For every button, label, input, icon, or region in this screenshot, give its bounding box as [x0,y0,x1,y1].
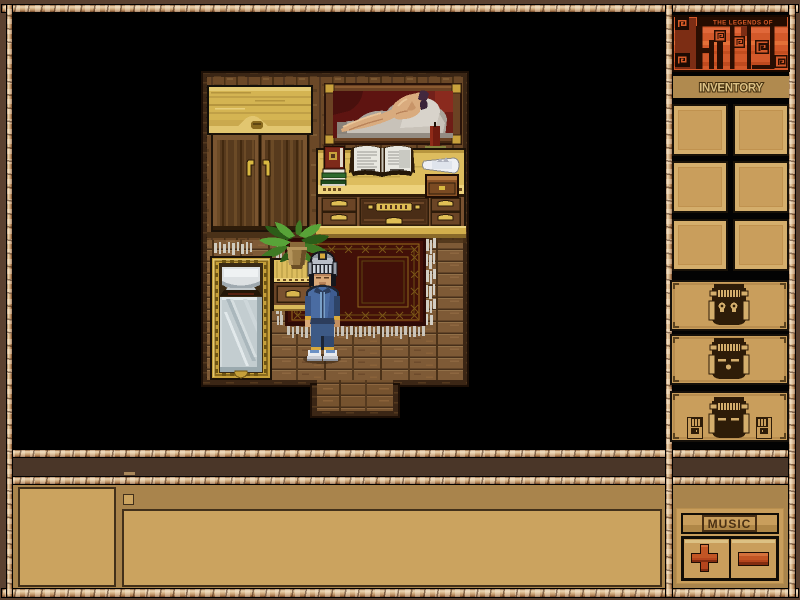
svg-text:THE LEGENDS OF: THE LEGENDS OF [713,19,773,26]
svg-text:MUSIC: MUSIC [708,517,752,531]
svg-text:INVENTORY: INVENTORY [699,83,763,95]
